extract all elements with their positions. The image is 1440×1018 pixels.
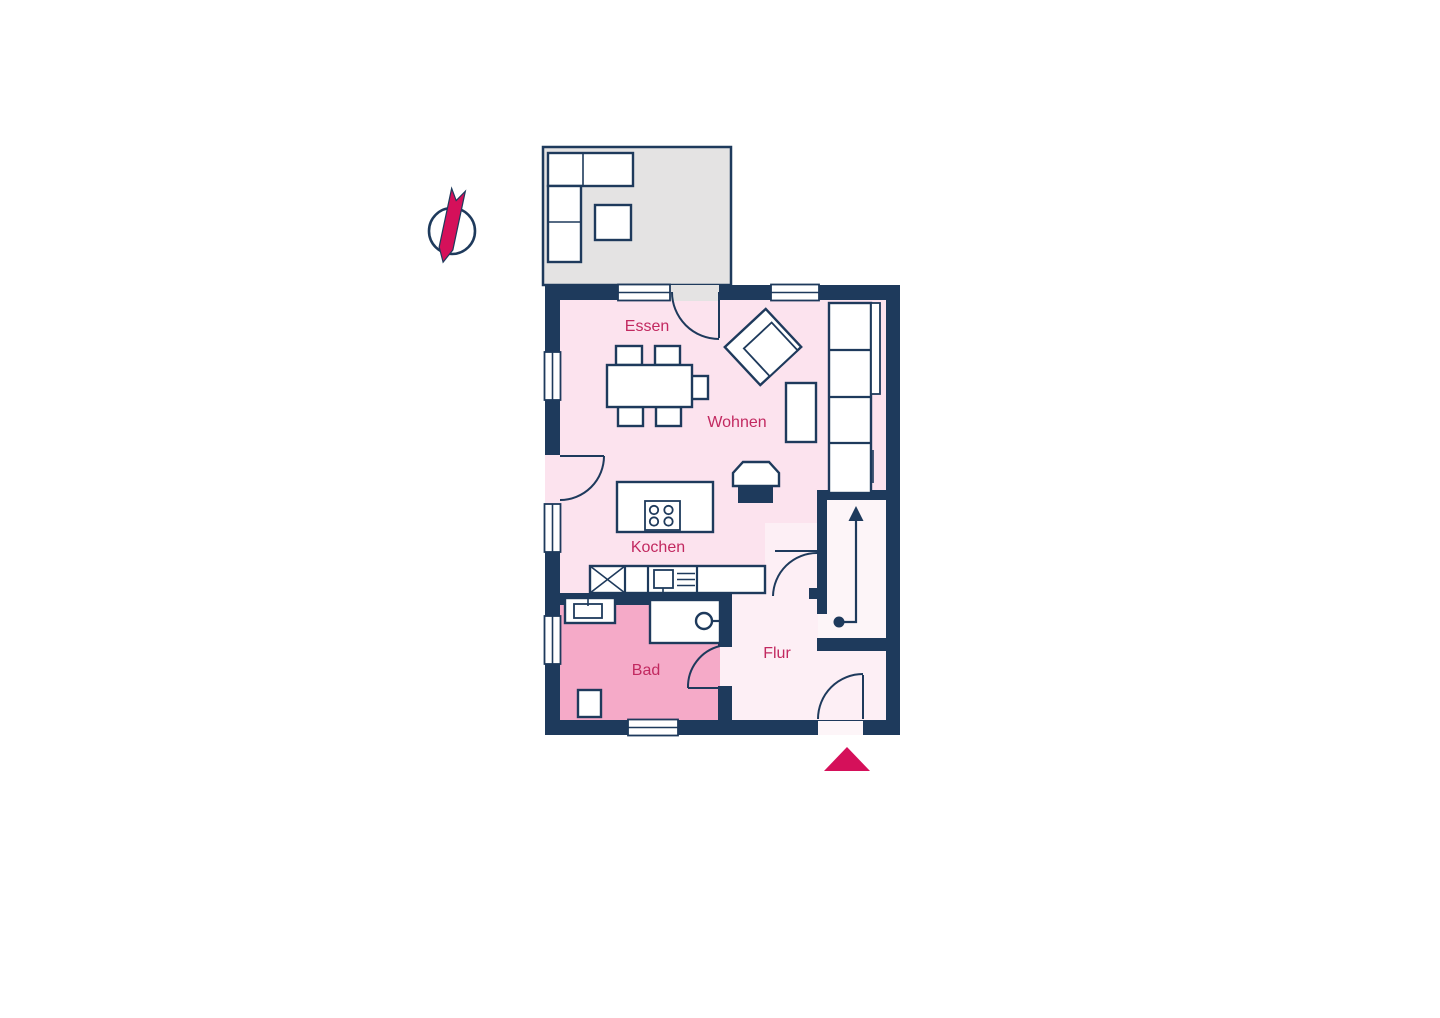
dining-chair: [618, 407, 643, 426]
stair-wall-stub: [809, 588, 821, 599]
floor-plan-page: Essen Wohnen Kochen Bad Flur: [0, 0, 1440, 1018]
room-label-kochen: Kochen: [631, 539, 685, 556]
burner: [650, 506, 658, 514]
washbasin: [565, 598, 615, 623]
floor-plan-drawing: Essen Wohnen Kochen Bad Flur: [0, 0, 1440, 1018]
wall-bad-flur-lower: [718, 686, 732, 722]
staircase: [809, 490, 886, 651]
opening-garden-door: [545, 455, 560, 504]
wall-top: [545, 285, 900, 300]
kitchen-counter: [590, 566, 765, 593]
terrace-area: [543, 147, 731, 285]
compass-north-arrow: [429, 188, 475, 263]
cooktop: [645, 501, 680, 530]
dining-chair: [656, 407, 681, 426]
room-label-flur: Flur: [763, 645, 791, 662]
burner: [664, 517, 672, 525]
window-left-middle: [545, 504, 561, 552]
wall-right: [886, 285, 900, 735]
opening-bad-door: [720, 647, 730, 686]
opening-terrace-door: [670, 285, 719, 301]
stair-wall-bottom: [817, 638, 886, 651]
sofa-backrest: [871, 303, 880, 394]
kitchen-island: [617, 482, 713, 532]
burner: [664, 506, 672, 514]
dining-chair: [691, 376, 708, 399]
room-label-essen: Essen: [625, 318, 669, 335]
entrance-arrow-triangle: [824, 747, 870, 771]
window-top-left: [618, 285, 670, 301]
terrace-table: [595, 205, 631, 240]
washing-machine: [650, 600, 721, 643]
doorway-kochen-flur: [765, 523, 817, 593]
window-top-right: [771, 285, 819, 301]
fireplace-chair: [733, 462, 779, 503]
sideboard: [786, 383, 816, 442]
window-left-upper: [545, 352, 561, 400]
dining-table: [607, 365, 692, 407]
shower-stool: [578, 690, 601, 717]
window-bottom: [628, 720, 678, 736]
room-label-wohnen: Wohnen: [707, 414, 766, 431]
burner: [650, 517, 658, 525]
window-left-lower: [545, 616, 561, 664]
dining-chair: [616, 346, 642, 365]
dining-chair: [655, 346, 680, 365]
opening-entrance-door: [818, 721, 863, 735]
room-label-bad: Bad: [632, 662, 660, 679]
